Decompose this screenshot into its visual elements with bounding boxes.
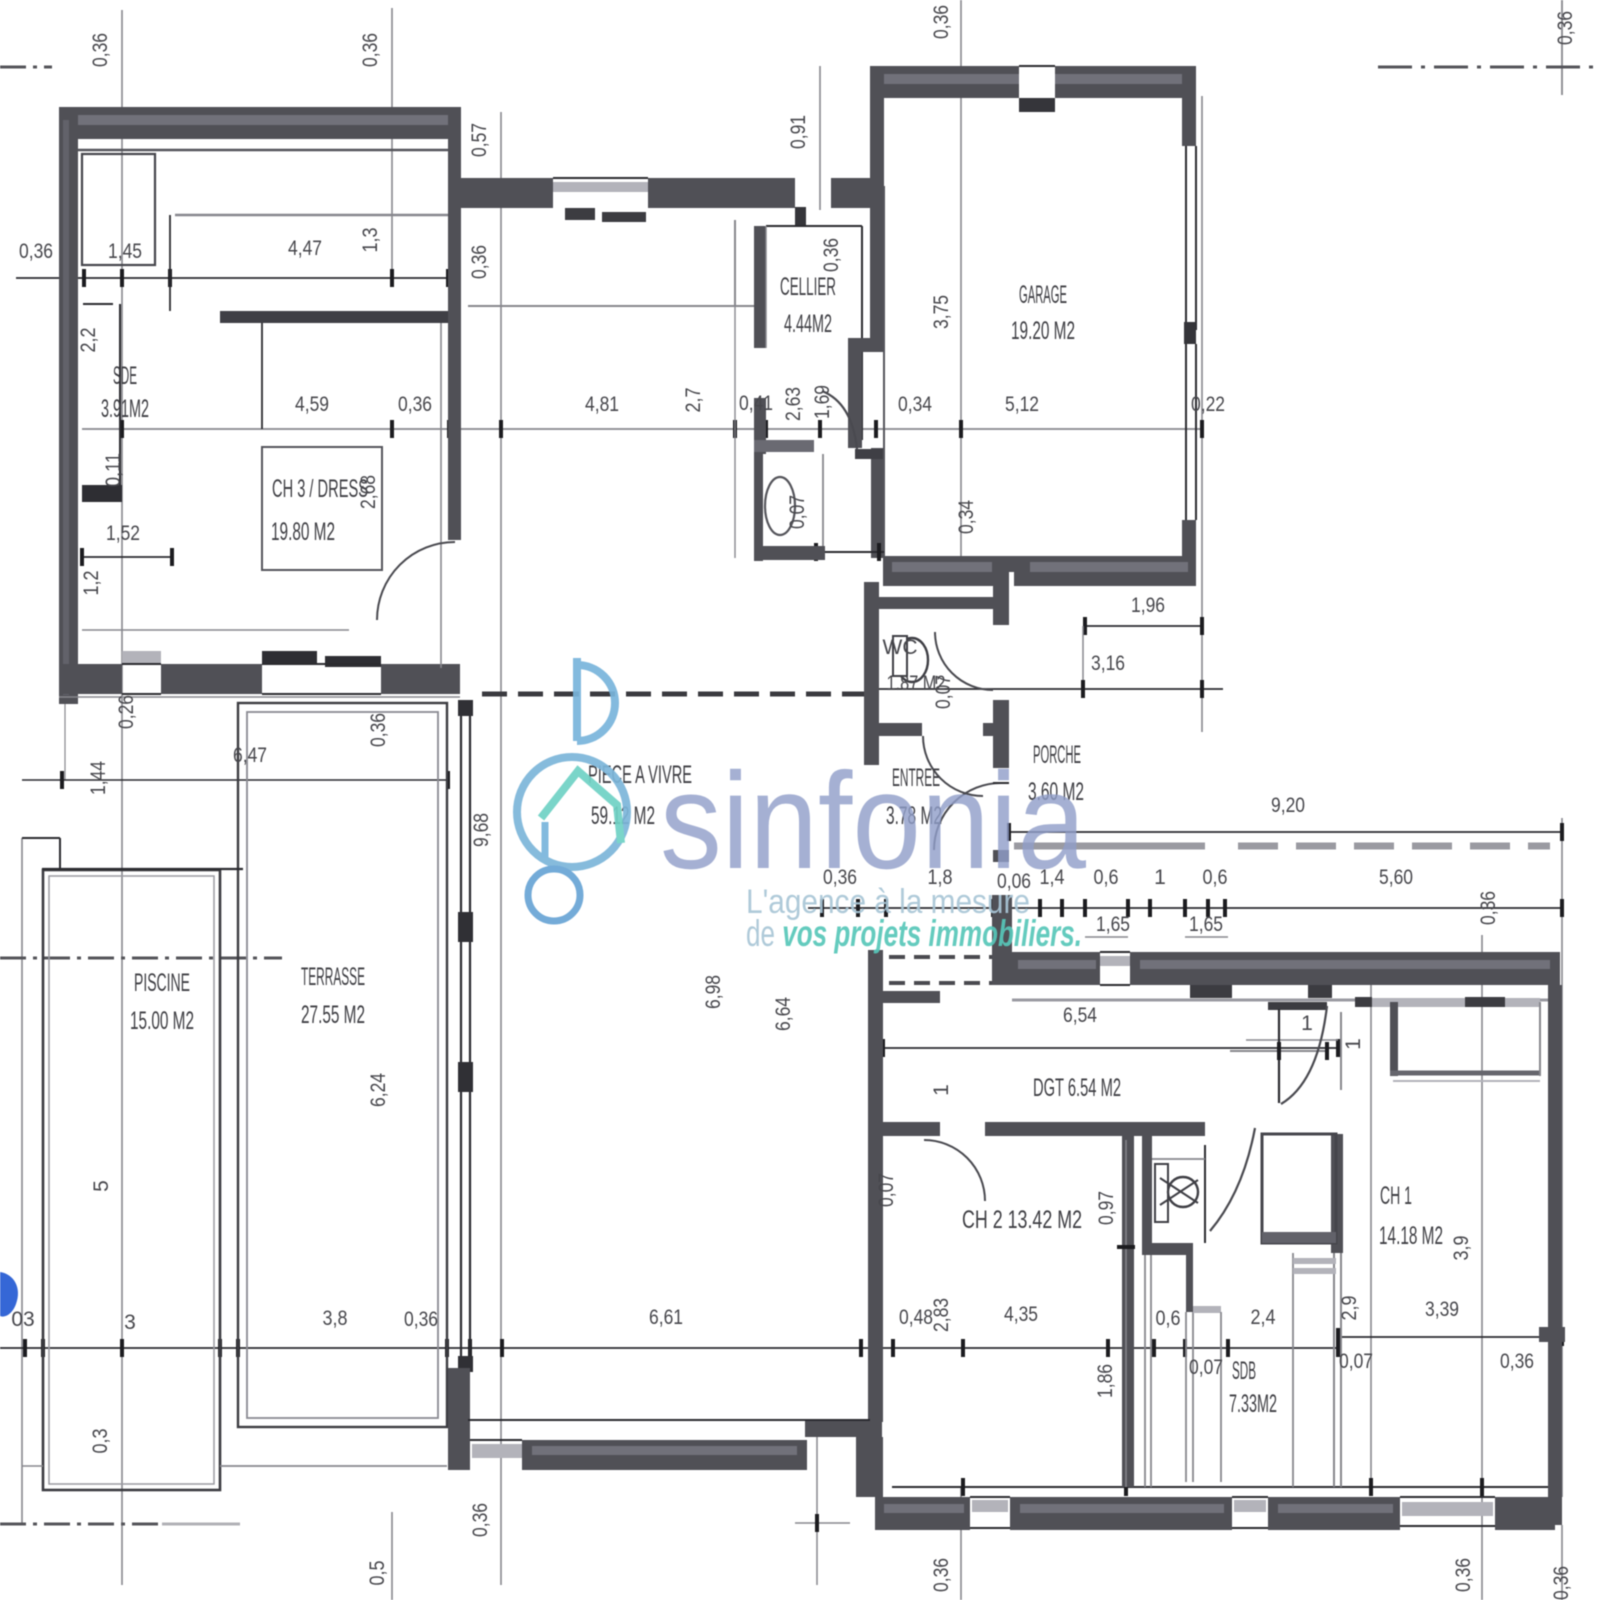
svg-text:9,20: 9,20 — [1271, 794, 1305, 817]
svg-text:3,16: 3,16 — [1091, 652, 1125, 675]
svg-text:5: 5 — [90, 1180, 113, 1192]
svg-text:3: 3 — [124, 1311, 136, 1334]
svg-text:1,44: 1,44 — [87, 761, 110, 795]
svg-text:0,07: 0,07 — [1189, 1356, 1223, 1379]
svg-text:2,83: 2,83 — [930, 1298, 953, 1332]
svg-text:0,07: 0,07 — [1339, 1350, 1373, 1373]
svg-text:0,07: 0,07 — [786, 495, 809, 529]
svg-text:3,75: 3,75 — [930, 295, 953, 329]
svg-text:sinfonia: sinfonia — [660, 745, 1087, 898]
svg-text:6,98: 6,98 — [702, 975, 725, 1009]
svg-text:0,11: 0,11 — [102, 453, 125, 487]
svg-text:0,36: 0,36 — [398, 393, 432, 416]
svg-text:03: 03 — [11, 1308, 34, 1331]
svg-text:1: 1 — [1154, 866, 1166, 889]
svg-text:9,68: 9,68 — [470, 813, 493, 847]
svg-text:15.00 M2: 15.00 M2 — [130, 1007, 194, 1035]
svg-text:0,36: 0,36 — [89, 33, 112, 67]
svg-text:14.18 M2: 14.18 M2 — [1379, 1222, 1443, 1250]
svg-text:4,81: 4,81 — [585, 393, 619, 416]
svg-text:0,6: 0,6 — [1094, 866, 1119, 889]
svg-text:5,60: 5,60 — [1379, 866, 1413, 889]
svg-text:4.44M2: 4.44M2 — [784, 310, 832, 338]
svg-text:0,26: 0,26 — [115, 695, 138, 729]
svg-text:1,86: 1,86 — [1094, 1364, 1117, 1398]
svg-text:6,24: 6,24 — [367, 1073, 390, 1107]
svg-text:6,54: 6,54 — [1063, 1004, 1097, 1027]
svg-text:1,65: 1,65 — [1189, 913, 1223, 936]
svg-text:0,36: 0,36 — [19, 240, 53, 263]
svg-text:SDB: SDB — [1232, 1357, 1256, 1385]
svg-text:0,5: 0,5 — [366, 1561, 389, 1586]
svg-text:0,36: 0,36 — [820, 238, 843, 272]
svg-text:1,65: 1,65 — [1096, 913, 1130, 936]
svg-text:1,45: 1,45 — [108, 240, 142, 263]
svg-text:0,57: 0,57 — [468, 123, 491, 157]
svg-text:4,35: 4,35 — [1004, 1303, 1038, 1326]
svg-text:0,97: 0,97 — [1095, 1191, 1118, 1225]
svg-text:0,36: 0,36 — [404, 1308, 438, 1331]
svg-text:2,68: 2,68 — [357, 475, 380, 509]
svg-text:6,61: 6,61 — [649, 1306, 683, 1329]
svg-text:1: 1 — [1342, 1038, 1365, 1050]
svg-text:4,47: 4,47 — [288, 237, 322, 260]
svg-text:0,36: 0,36 — [359, 33, 382, 67]
svg-text:0,07: 0,07 — [932, 675, 955, 709]
svg-text:de vos projets immobiliers.: de vos projets immobiliers. — [746, 913, 1082, 954]
svg-text:1,3: 1,3 — [359, 228, 382, 253]
svg-text:2,4: 2,4 — [1251, 1306, 1276, 1329]
svg-text:0,6: 0,6 — [1156, 1307, 1181, 1330]
svg-text:2,9: 2,9 — [1338, 1296, 1361, 1321]
svg-text:6,47: 6,47 — [233, 744, 267, 767]
svg-text:CH 2 13.42 M2: CH 2 13.42 M2 — [962, 1206, 1082, 1234]
svg-text:1,96: 1,96 — [1131, 594, 1165, 617]
svg-text:GARAGE: GARAGE — [1019, 281, 1067, 309]
svg-text:0,22: 0,22 — [1191, 393, 1225, 416]
svg-text:PISCINE: PISCINE — [134, 969, 190, 997]
svg-text:DGT 6.54 M2: DGT 6.54 M2 — [1033, 1074, 1121, 1102]
svg-text:0,36: 0,36 — [1554, 11, 1577, 45]
svg-text:5,12: 5,12 — [1005, 393, 1039, 416]
svg-text:3.91M2: 3.91M2 — [101, 395, 149, 423]
svg-text:0,36: 0,36 — [1500, 1350, 1534, 1373]
svg-text:2,7: 2,7 — [682, 388, 705, 413]
svg-text:3,39: 3,39 — [1425, 1298, 1459, 1321]
svg-text:2,63: 2,63 — [782, 387, 805, 421]
svg-text:1,2: 1,2 — [80, 571, 103, 596]
svg-text:4,59: 4,59 — [295, 393, 329, 416]
svg-text:1: 1 — [930, 1084, 953, 1096]
svg-text:0,91: 0,91 — [787, 115, 810, 149]
svg-text:27.55 M2: 27.55 M2 — [301, 1001, 365, 1029]
svg-text:19.20 M2: 19.20 M2 — [1011, 317, 1075, 345]
svg-text:0,36: 0,36 — [1550, 1566, 1573, 1600]
svg-text:0,36: 0,36 — [930, 1558, 953, 1592]
svg-text:3,9: 3,9 — [1450, 1236, 1473, 1261]
svg-text:0,6: 0,6 — [1203, 866, 1228, 889]
svg-text:0,3: 0,3 — [89, 1429, 112, 1454]
svg-text:0,36: 0,36 — [367, 713, 390, 747]
svg-text:3,8: 3,8 — [323, 1307, 348, 1330]
svg-text:0,48: 0,48 — [899, 1306, 933, 1329]
svg-text:CH 1: CH 1 — [1380, 1182, 1412, 1210]
svg-text:0,07: 0,07 — [875, 1173, 898, 1207]
svg-text:CH 3 / DRESS: CH 3 / DRESS — [272, 475, 368, 503]
svg-text:1,52: 1,52 — [106, 522, 140, 545]
svg-text:0,34: 0,34 — [955, 500, 978, 534]
svg-text:0,36: 0,36 — [1452, 1558, 1475, 1592]
svg-text:0,36: 0,36 — [1477, 891, 1500, 925]
svg-text:1,69: 1,69 — [811, 385, 834, 419]
svg-text:SDE: SDE — [113, 362, 137, 390]
svg-text:0,34: 0,34 — [898, 393, 932, 416]
svg-text:1: 1 — [1301, 1012, 1313, 1035]
svg-text:6,64: 6,64 — [772, 997, 795, 1031]
svg-text:0,36: 0,36 — [930, 5, 953, 39]
svg-text:0,36: 0,36 — [469, 1503, 492, 1537]
svg-text:0,36: 0,36 — [468, 245, 491, 279]
svg-text:2,2: 2,2 — [77, 328, 100, 353]
svg-text:TERRASSE: TERRASSE — [301, 963, 365, 991]
svg-text:7.33M2: 7.33M2 — [1229, 1390, 1277, 1418]
svg-text:CELLIER: CELLIER — [780, 273, 836, 301]
svg-text:19.80 M2: 19.80 M2 — [271, 518, 335, 546]
svg-text:0,41: 0,41 — [739, 392, 773, 415]
svg-text:WC: WC — [883, 636, 918, 659]
